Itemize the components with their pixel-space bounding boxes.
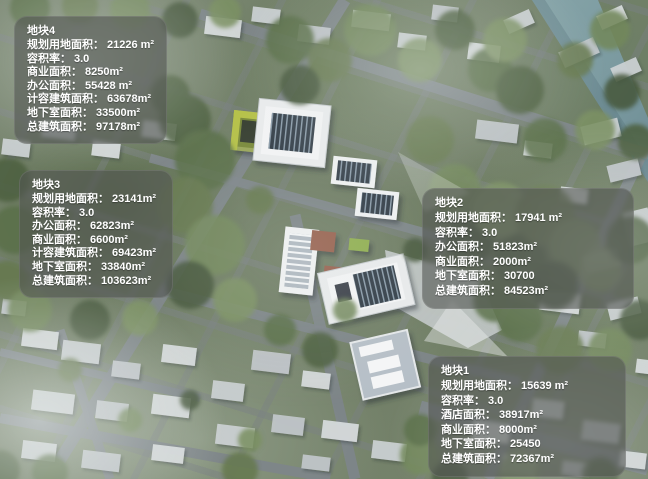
map-building	[161, 344, 197, 366]
plot-row-value: 63678m²	[107, 93, 151, 105]
tree-cluster	[302, 332, 338, 368]
plot-row-label: 办公面积：	[27, 80, 82, 92]
plot-row: 办公面积：55428 m²	[27, 80, 154, 94]
map-building	[31, 390, 75, 415]
tree-cluster	[166, 261, 214, 309]
plot-row: 容积率：3.0	[32, 207, 160, 221]
plot-row-value: 21226 m²	[107, 39, 154, 51]
campus-block	[331, 156, 378, 188]
tree-cluster	[280, 65, 320, 105]
plot-row-label: 容积率：	[27, 53, 71, 65]
plot-title: 地块3	[32, 178, 160, 192]
plot-row-label: 地下室面积：	[435, 270, 501, 282]
plot-row: 规划用地面积：17941 m²	[435, 211, 621, 226]
plot-rows: 规划用地面积：17941 m²容积率：3.0办公面积：51823m²商业面积：2…	[435, 211, 621, 299]
tree-cluster	[0, 450, 20, 479]
plot-row-label: 总建筑面积：	[27, 121, 93, 133]
tree-cluster	[557, 42, 593, 78]
plot-row-label: 规划用地面积：	[32, 193, 109, 205]
map-building	[111, 360, 141, 379]
plot-rows: 规划用地面积：21226 m²容积率：3.0商业面积：8250m²办公面积：55…	[27, 39, 154, 134]
plot-row: 办公面积：51823m²	[435, 240, 621, 255]
tree-cluster	[435, 10, 475, 50]
tree-cluster	[266, 16, 314, 64]
tree-cluster	[590, 10, 630, 50]
plot-row-value: 23141m²	[112, 193, 156, 205]
plot-row: 商业面积：8000m²	[441, 423, 613, 438]
plot-info-box-3: 地块3 规划用地面积：23141m²容积率：3.0办公面积：62823m²商业面…	[19, 170, 173, 298]
plot-row-label: 总建筑面积：	[441, 453, 507, 465]
plot-row-label: 规划用地面积：	[435, 212, 512, 224]
map-building	[301, 370, 331, 389]
plot-row-value: 3.0	[482, 227, 497, 239]
map-building	[475, 120, 519, 144]
plot-info-box-2: 地块2 规划用地面积：17941 m²容积率：3.0办公面积：51823m²商业…	[422, 188, 634, 309]
tree-cluster	[264, 314, 296, 346]
plot-row-value: 3.0	[79, 207, 94, 219]
plot-row-value: 15639 m²	[521, 380, 568, 392]
plot-row-label: 商业面积：	[27, 66, 82, 78]
plot-row: 商业面积：6600m²	[32, 234, 160, 248]
plot-row-value: 84523m²	[504, 285, 548, 297]
tree-cluster	[162, 2, 198, 38]
plot-row-label: 规划用地面积：	[441, 380, 518, 392]
plot-row-label: 商业面积：	[441, 424, 496, 436]
plot-title: 地块4	[27, 24, 154, 38]
tower-plot2	[318, 254, 415, 324]
plot-row-label: 酒店面积：	[441, 409, 496, 421]
tree-cluster	[483, 18, 527, 62]
tree-cluster	[238, 428, 262, 452]
plot-row: 商业面积：8250m²	[27, 66, 154, 80]
plot-row-value: 33500m²	[96, 107, 140, 119]
plot-row: 计容建筑面积：69423m²	[32, 247, 160, 261]
plot-row-value: 62823m²	[90, 220, 134, 232]
plot-row: 容积率：3.0	[27, 53, 154, 67]
map-building	[635, 359, 648, 376]
tree-cluster	[333, 298, 357, 322]
plot-row-label: 办公面积：	[32, 220, 87, 232]
map-building	[251, 350, 291, 374]
plot-row-value: 3.0	[74, 53, 89, 65]
tree-cluster	[122, 300, 158, 336]
plot-row-value: 51823m²	[493, 241, 537, 253]
plot-row: 总建筑面积：97178m²	[27, 121, 154, 135]
tree-cluster	[523, 118, 567, 162]
plot-row-value: 8250m²	[85, 66, 123, 78]
map-building	[321, 420, 359, 442]
plot-row-label: 计容建筑面积：	[32, 247, 109, 259]
plot-row: 规划用地面积：15639 m²	[441, 379, 613, 394]
plot-row-value: 72367m²	[510, 453, 554, 465]
plot-row-value: 6600m²	[90, 234, 128, 246]
plot-row-value: 55428 m²	[85, 80, 132, 92]
plot-rows: 规划用地面积：23141m²容积率：3.0办公面积：62823m²商业面积：66…	[32, 193, 160, 288]
plot-row: 办公面积：62823m²	[32, 220, 160, 234]
plot-row-value: 17941 m²	[515, 212, 562, 224]
plot-row: 规划用地面积：23141m²	[32, 193, 160, 207]
plot-row: 规划用地面积：21226 m²	[27, 39, 154, 53]
plot-row-label: 商业面积：	[435, 256, 490, 268]
map-building	[271, 414, 305, 436]
plot-row: 商业面积：2000m²	[435, 255, 621, 270]
map-building	[81, 450, 121, 472]
plot-row-value: 8000m²	[499, 424, 537, 436]
tree-cluster	[213, 278, 257, 322]
tree-cluster	[180, 390, 200, 410]
tree-cluster	[70, 300, 110, 340]
tree-cluster	[406, 116, 454, 164]
map-building	[211, 380, 245, 402]
plot-row-label: 商业面积：	[32, 234, 87, 246]
tree-cluster	[604, 74, 640, 110]
plot-row-value: 30700	[504, 270, 535, 282]
plot-info-box-1: 地块1 规划用地面积：15639 m²容积率：3.0酒店面积：38917m²商业…	[428, 356, 626, 477]
plot-title: 地块1	[441, 364, 613, 378]
plot-row: 容积率：3.0	[435, 226, 621, 241]
aerial-masterplan-render: 地块4 规划用地面积：21226 m²容积率：3.0商业面积：8250m²办公面…	[0, 0, 648, 479]
plot-row-value: 3.0	[488, 395, 503, 407]
plot-row: 总建筑面积：84523m²	[435, 284, 621, 299]
plot-row-value: 38917m²	[499, 409, 543, 421]
tree-cluster	[575, 110, 615, 150]
plot-row-label: 总建筑面积：	[32, 275, 98, 287]
plot-row: 总建筑面积：72367m²	[441, 452, 613, 467]
tree-cluster	[496, 66, 544, 114]
plot-info-box-4: 地块4 规划用地面积：21226 m²容积率：3.0商业面积：8250m²办公面…	[14, 16, 167, 144]
plot-row-value: 33840m²	[101, 261, 145, 273]
plot-row: 地下室面积：33500m²	[27, 107, 154, 121]
tree-cluster	[246, 186, 274, 214]
plot-row: 地下室面积：30700	[435, 269, 621, 284]
tree-cluster	[344, 4, 396, 56]
plot-row-label: 总建筑面积：	[435, 285, 501, 297]
plot-rows: 规划用地面积：15639 m²容积率：3.0酒店面积：38917m²商业面积：8…	[441, 379, 613, 467]
plot-row-value: 2000m²	[493, 256, 531, 268]
plot-row-label: 地下室面积：	[441, 438, 507, 450]
plot-row-label: 地下室面积：	[32, 261, 98, 273]
plot-row-value: 69423m²	[112, 247, 156, 259]
plot-row-label: 规划用地面积：	[27, 39, 104, 51]
plot-row-label: 容积率：	[32, 207, 76, 219]
tower-plot1	[350, 330, 420, 400]
tree-cluster	[58, 358, 82, 382]
campus-block	[355, 188, 400, 220]
plot-row: 地下室面积：33840m²	[32, 261, 160, 275]
solar-roof-building	[253, 98, 331, 167]
plot-row: 容积率：3.0	[441, 394, 613, 409]
tree-cluster	[398, 38, 442, 82]
plot-row-label: 计容建筑面积：	[27, 93, 104, 105]
plot-row: 计容建筑面积：63678m²	[27, 93, 154, 107]
plot-row-label: 地下室面积：	[27, 107, 93, 119]
map-building	[606, 158, 641, 182]
plot-row-value: 25450	[510, 438, 541, 450]
plot-title: 地块2	[435, 196, 621, 210]
plot-row: 地下室面积：25450	[441, 437, 613, 452]
plot-row: 酒店面积：38917m²	[441, 408, 613, 423]
plot-row: 总建筑面积：103623m²	[32, 275, 160, 289]
plot-row-label: 办公面积：	[435, 241, 490, 253]
tree-cluster	[118, 408, 142, 432]
plot-row-label: 容积率：	[435, 227, 479, 239]
plot-row-value: 103623m²	[101, 275, 151, 287]
plot-row-value: 97178m²	[96, 121, 140, 133]
plot-row-label: 容积率：	[441, 395, 485, 407]
